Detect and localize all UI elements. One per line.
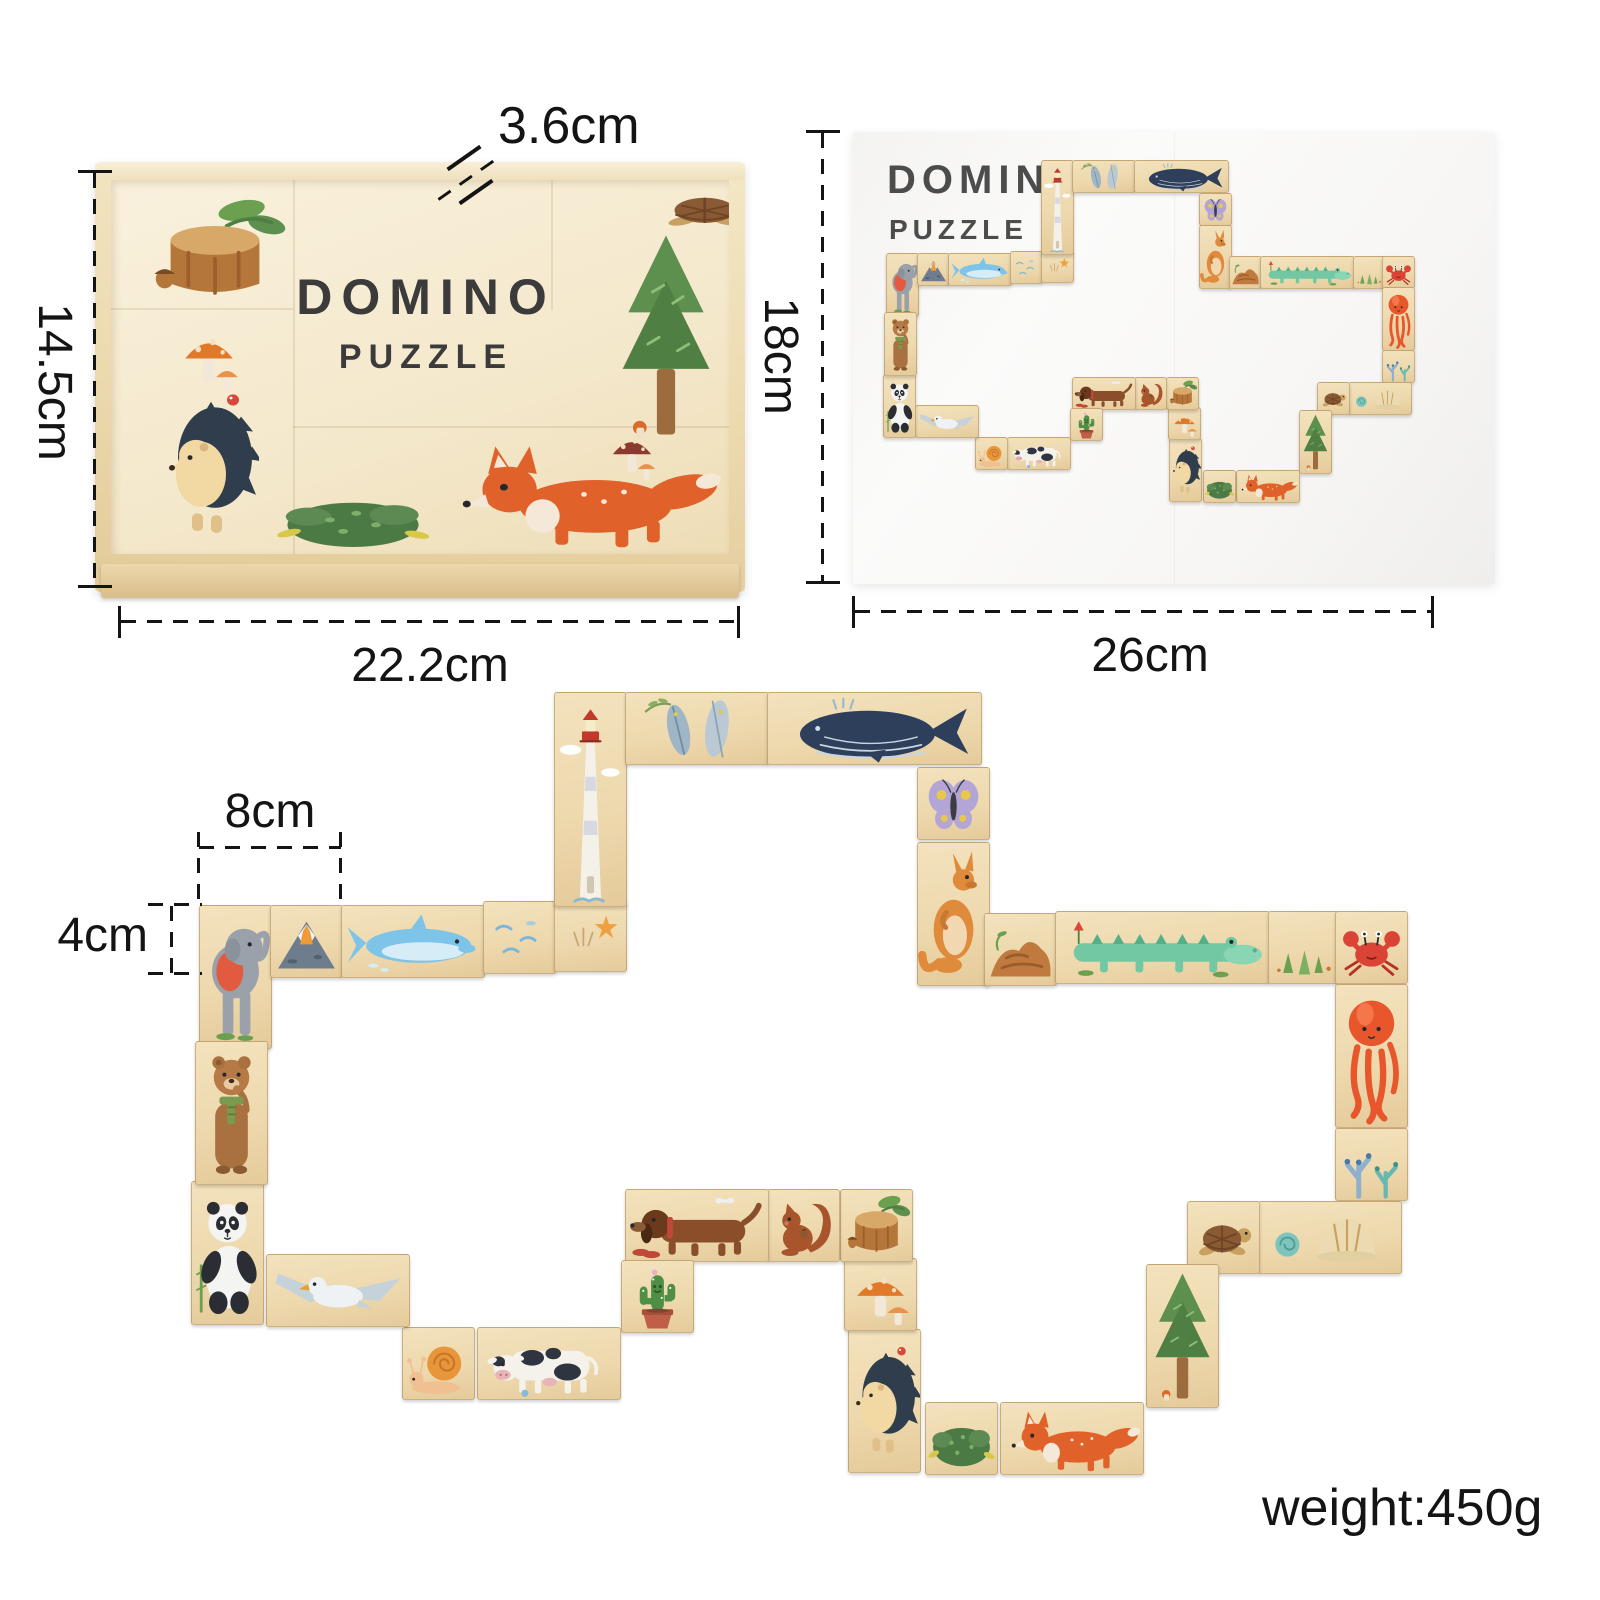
box-art-pine-tree <box>609 222 723 448</box>
tile-squirrel <box>1134 377 1167 410</box>
box-art-hedgehog <box>159 372 259 554</box>
tile-seagull <box>915 405 979 438</box>
tile-volcano <box>917 253 950 286</box>
tile-shells <box>1258 1201 1402 1274</box>
tile-whale <box>1134 160 1229 193</box>
piece-height-label: 4cm <box>28 912 148 960</box>
box-width-label: 22.2cm <box>330 642 530 690</box>
poster-width-line <box>855 610 1433 613</box>
tile-tree-stump <box>840 1189 913 1262</box>
tile-crab <box>1335 911 1408 984</box>
tile-octopus <box>1382 287 1415 351</box>
tile-bush <box>925 1402 998 1475</box>
tile-squirrel <box>767 1189 840 1262</box>
tile-mushrooms <box>844 1258 917 1331</box>
wooden-box: DOMINO PUZZLE <box>95 162 745 592</box>
box-lid: DOMINO PUZZLE <box>111 180 729 554</box>
tile-pine-tree <box>1146 1264 1219 1408</box>
poster-height-cap-bottom <box>806 581 840 584</box>
box-height-line <box>93 173 96 587</box>
poster-title-puzzle: PUZZLE <box>889 214 1028 246</box>
tile-whale <box>767 692 982 765</box>
box-width-cap-right <box>737 606 740 638</box>
tile-panda <box>191 1181 264 1325</box>
tile-shell-starfish <box>1041 250 1074 283</box>
tile-elephant <box>199 905 272 1049</box>
box-art-turtle <box>651 180 729 242</box>
tile-butterfly <box>1199 193 1232 226</box>
tile-hedgehog <box>1169 438 1202 502</box>
tile-rock <box>1229 256 1262 289</box>
tile-octopus <box>1335 984 1408 1128</box>
tile-snail <box>975 437 1008 470</box>
tile-tree-stump <box>1166 377 1199 410</box>
tile-elephant <box>886 253 919 317</box>
tile-bush <box>1203 470 1236 503</box>
tile-cow <box>477 1327 621 1400</box>
tile-bear <box>195 1041 268 1185</box>
tile-panda <box>883 374 916 438</box>
box-height-cap-bottom <box>78 585 112 588</box>
tile-coral <box>1335 1128 1408 1201</box>
tile-mushrooms <box>1168 407 1201 440</box>
tile-seagull <box>266 1254 410 1327</box>
piece-length-tick-right <box>339 832 342 904</box>
tile-dachshund <box>1072 377 1136 410</box>
tile-volcano <box>270 905 343 978</box>
weight-label: weight:450g <box>1262 1478 1542 1538</box>
tile-butterfly <box>917 767 990 840</box>
tile-seagrass <box>1268 911 1341 984</box>
tile-cow <box>1007 437 1071 470</box>
product-infographic: DOMINO PUZZLE 3.6cm 14.5cm 22.2cm DOMINO… <box>0 0 1600 1600</box>
box-height-label: 14.5cm <box>30 282 78 482</box>
tile-hedgehog <box>848 1329 921 1473</box>
box-art-fox <box>441 432 727 552</box>
tile-waves <box>483 901 556 974</box>
piece-height-line <box>170 906 173 974</box>
tile-crab <box>1382 256 1415 289</box>
piece-length-line <box>199 846 341 849</box>
tile-cactus <box>1070 408 1103 441</box>
tile-dolphin <box>948 253 1012 286</box>
box-art-small-mushrooms <box>603 422 661 484</box>
tile-cactus <box>621 1260 694 1333</box>
tile-dachshund <box>625 1189 769 1262</box>
box-width-line <box>121 620 739 623</box>
piece-length-tick-left <box>197 832 200 904</box>
poster-fold-line <box>1174 132 1176 584</box>
box-bottom-rail <box>101 564 739 598</box>
tile-bear <box>884 312 917 376</box>
tile-kangaroo <box>917 842 990 986</box>
piece-height-tick-bottom <box>148 972 202 975</box>
tile-fox <box>1000 1402 1144 1475</box>
poster-height-line <box>821 133 824 583</box>
piece-height-tick-top <box>148 903 202 906</box>
tile-kangaroo <box>1199 225 1232 289</box>
box-title-domino: DOMINO <box>281 268 571 326</box>
tile-feathers <box>1072 160 1136 193</box>
tile-shell-starfish <box>554 899 627 972</box>
box-art-tree-stump <box>141 190 289 310</box>
tile-feathers <box>625 692 769 765</box>
poster-width-label: 26cm <box>1050 632 1250 680</box>
box-art-bush <box>271 474 435 554</box>
tile-lighthouse <box>554 692 627 907</box>
tile-seagrass <box>1353 256 1386 289</box>
poster-height-label: 18cm <box>756 256 804 456</box>
tile-waves <box>1010 251 1043 284</box>
tile-rock <box>984 913 1057 986</box>
poster-width-cap-right <box>1431 596 1434 628</box>
tile-crocodile <box>1260 256 1355 289</box>
tile-dolphin <box>341 905 485 978</box>
tile-crocodile <box>1055 911 1270 984</box>
tile-shells <box>1348 382 1412 415</box>
tile-fox <box>1236 470 1300 503</box>
tile-snail <box>402 1327 475 1400</box>
box-top-edge <box>95 162 745 180</box>
tile-lighthouse <box>1041 160 1074 255</box>
piece-length-label: 8cm <box>170 788 370 836</box>
box-title-puzzle: PUZZLE <box>281 338 571 377</box>
box-depth-label: 3.6cm <box>498 100 640 152</box>
tile-coral <box>1382 350 1415 383</box>
tile-pine-tree <box>1299 410 1332 474</box>
